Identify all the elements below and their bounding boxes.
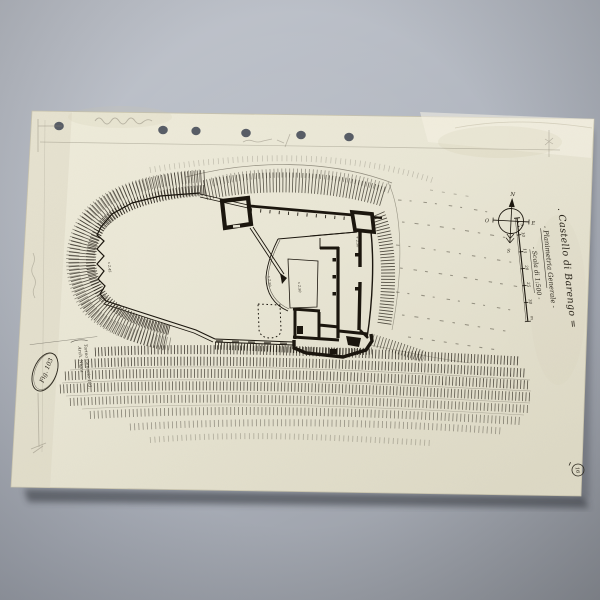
punch-hole bbox=[158, 126, 168, 135]
compass-west-label: O bbox=[485, 218, 489, 224]
punch-hole bbox=[344, 133, 354, 142]
scale-label: 15 bbox=[522, 248, 528, 254]
punch-hole bbox=[191, 127, 200, 135]
scale-label: 25 bbox=[526, 281, 532, 288]
photographed-drawing: x 2.50 x 2.50 + 2.50 x 2.45 N E S O . Ca… bbox=[0, 0, 600, 600]
spot-height: x 2.50 bbox=[267, 276, 272, 288]
scale-unit-label: m bbox=[530, 316, 535, 321]
compass-east-label: E bbox=[530, 221, 535, 227]
scale-label: 20 bbox=[524, 264, 530, 271]
compass-north-label: N bbox=[509, 192, 515, 198]
spot-height: + 2.50 bbox=[355, 236, 360, 249]
drawing-canvas: x 2.50 x 2.50 + 2.50 x 2.45 N E S O . Ca… bbox=[0, 0, 600, 600]
spot-height: x 2.45 bbox=[107, 262, 112, 273]
scale-label: 30 bbox=[528, 299, 534, 305]
punch-hole bbox=[241, 129, 251, 138]
punch-hole bbox=[296, 131, 306, 140]
spot-height: x 2.50 bbox=[297, 282, 302, 294]
scale-label: 10 bbox=[521, 232, 527, 238]
